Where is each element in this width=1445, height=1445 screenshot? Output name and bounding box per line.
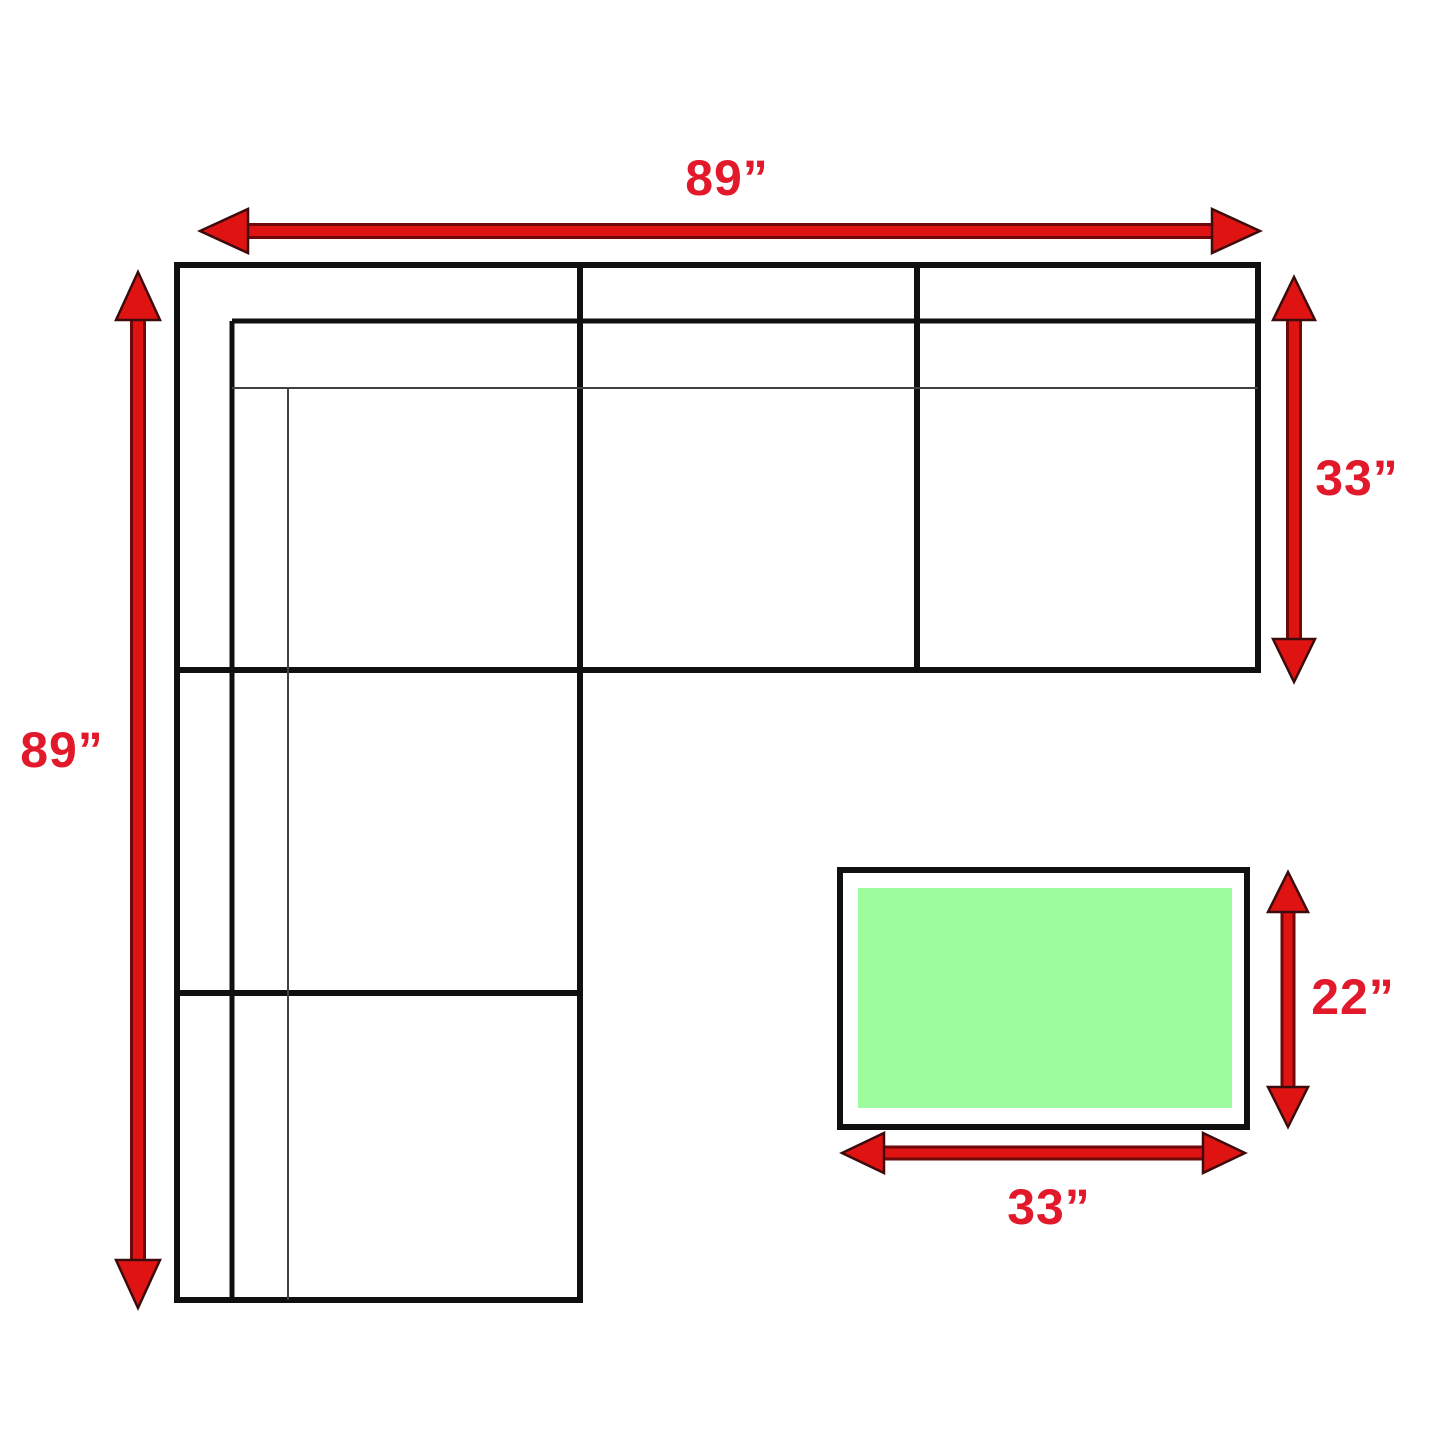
furniture-dimension-diagram: 89” 89” 33” 22” 33” xyxy=(0,0,1445,1445)
dimension-label-ottoman-depth: 22” xyxy=(1311,972,1395,1022)
dimension-arrow-ottoman-depth xyxy=(1268,872,1308,1127)
dimension-label-sofa-depth: 33” xyxy=(1315,453,1399,503)
dimension-arrow-sofa-depth xyxy=(1273,277,1315,682)
dimension-label-ottoman-width: 33” xyxy=(1007,1182,1091,1232)
dimension-arrow-sofa-width xyxy=(200,209,1260,253)
ottoman-top-surface xyxy=(858,888,1232,1108)
dimension-arrow-ottoman-width xyxy=(842,1133,1245,1173)
dimension-arrow-sofa-height xyxy=(116,272,160,1308)
floor-plan-svg xyxy=(0,0,1445,1445)
dimension-label-sofa-width: 89” xyxy=(685,153,769,203)
sectional-sofa-outline xyxy=(177,265,1258,1300)
dimension-label-sofa-height: 89” xyxy=(20,725,104,775)
